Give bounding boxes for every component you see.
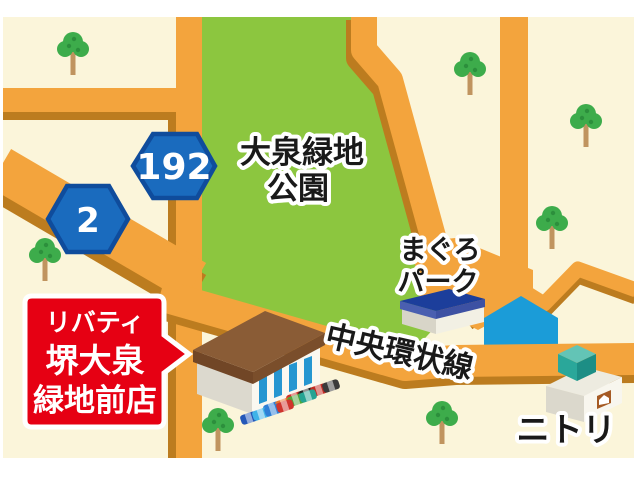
map-canvas: 192 2 大泉緑地 公園 まぐろ パーク 中央環状線 ニトリ リバティ 堺大泉… xyxy=(0,0,640,480)
route-number-2: 2 xyxy=(76,201,100,241)
maguro-park-label-line2: パーク xyxy=(398,267,479,298)
nitori-label: ニトリ xyxy=(517,410,616,449)
store-sign-line3: 緑地前店 xyxy=(33,383,157,419)
route-badge-2: 2 xyxy=(48,186,128,252)
route-badge-192: 192 xyxy=(133,134,215,198)
store-callout-sign: リバティ 堺大泉 緑地前店 xyxy=(25,296,189,427)
park-name-line2: 公園 xyxy=(267,171,329,207)
store-sign-line2: 堺大泉 xyxy=(46,341,145,380)
park-name-line1: 大泉緑地 xyxy=(240,135,364,171)
store-sign-line1: リバティ xyxy=(46,308,145,337)
road-vertical-right xyxy=(500,17,528,285)
store-location-map: 192 2 大泉緑地 公園 まぐろ パーク 中央環状線 ニトリ リバティ 堺大泉… xyxy=(0,0,640,480)
route-number-192: 192 xyxy=(136,147,211,188)
maguro-park-label-line1: まぐろ xyxy=(400,235,481,266)
